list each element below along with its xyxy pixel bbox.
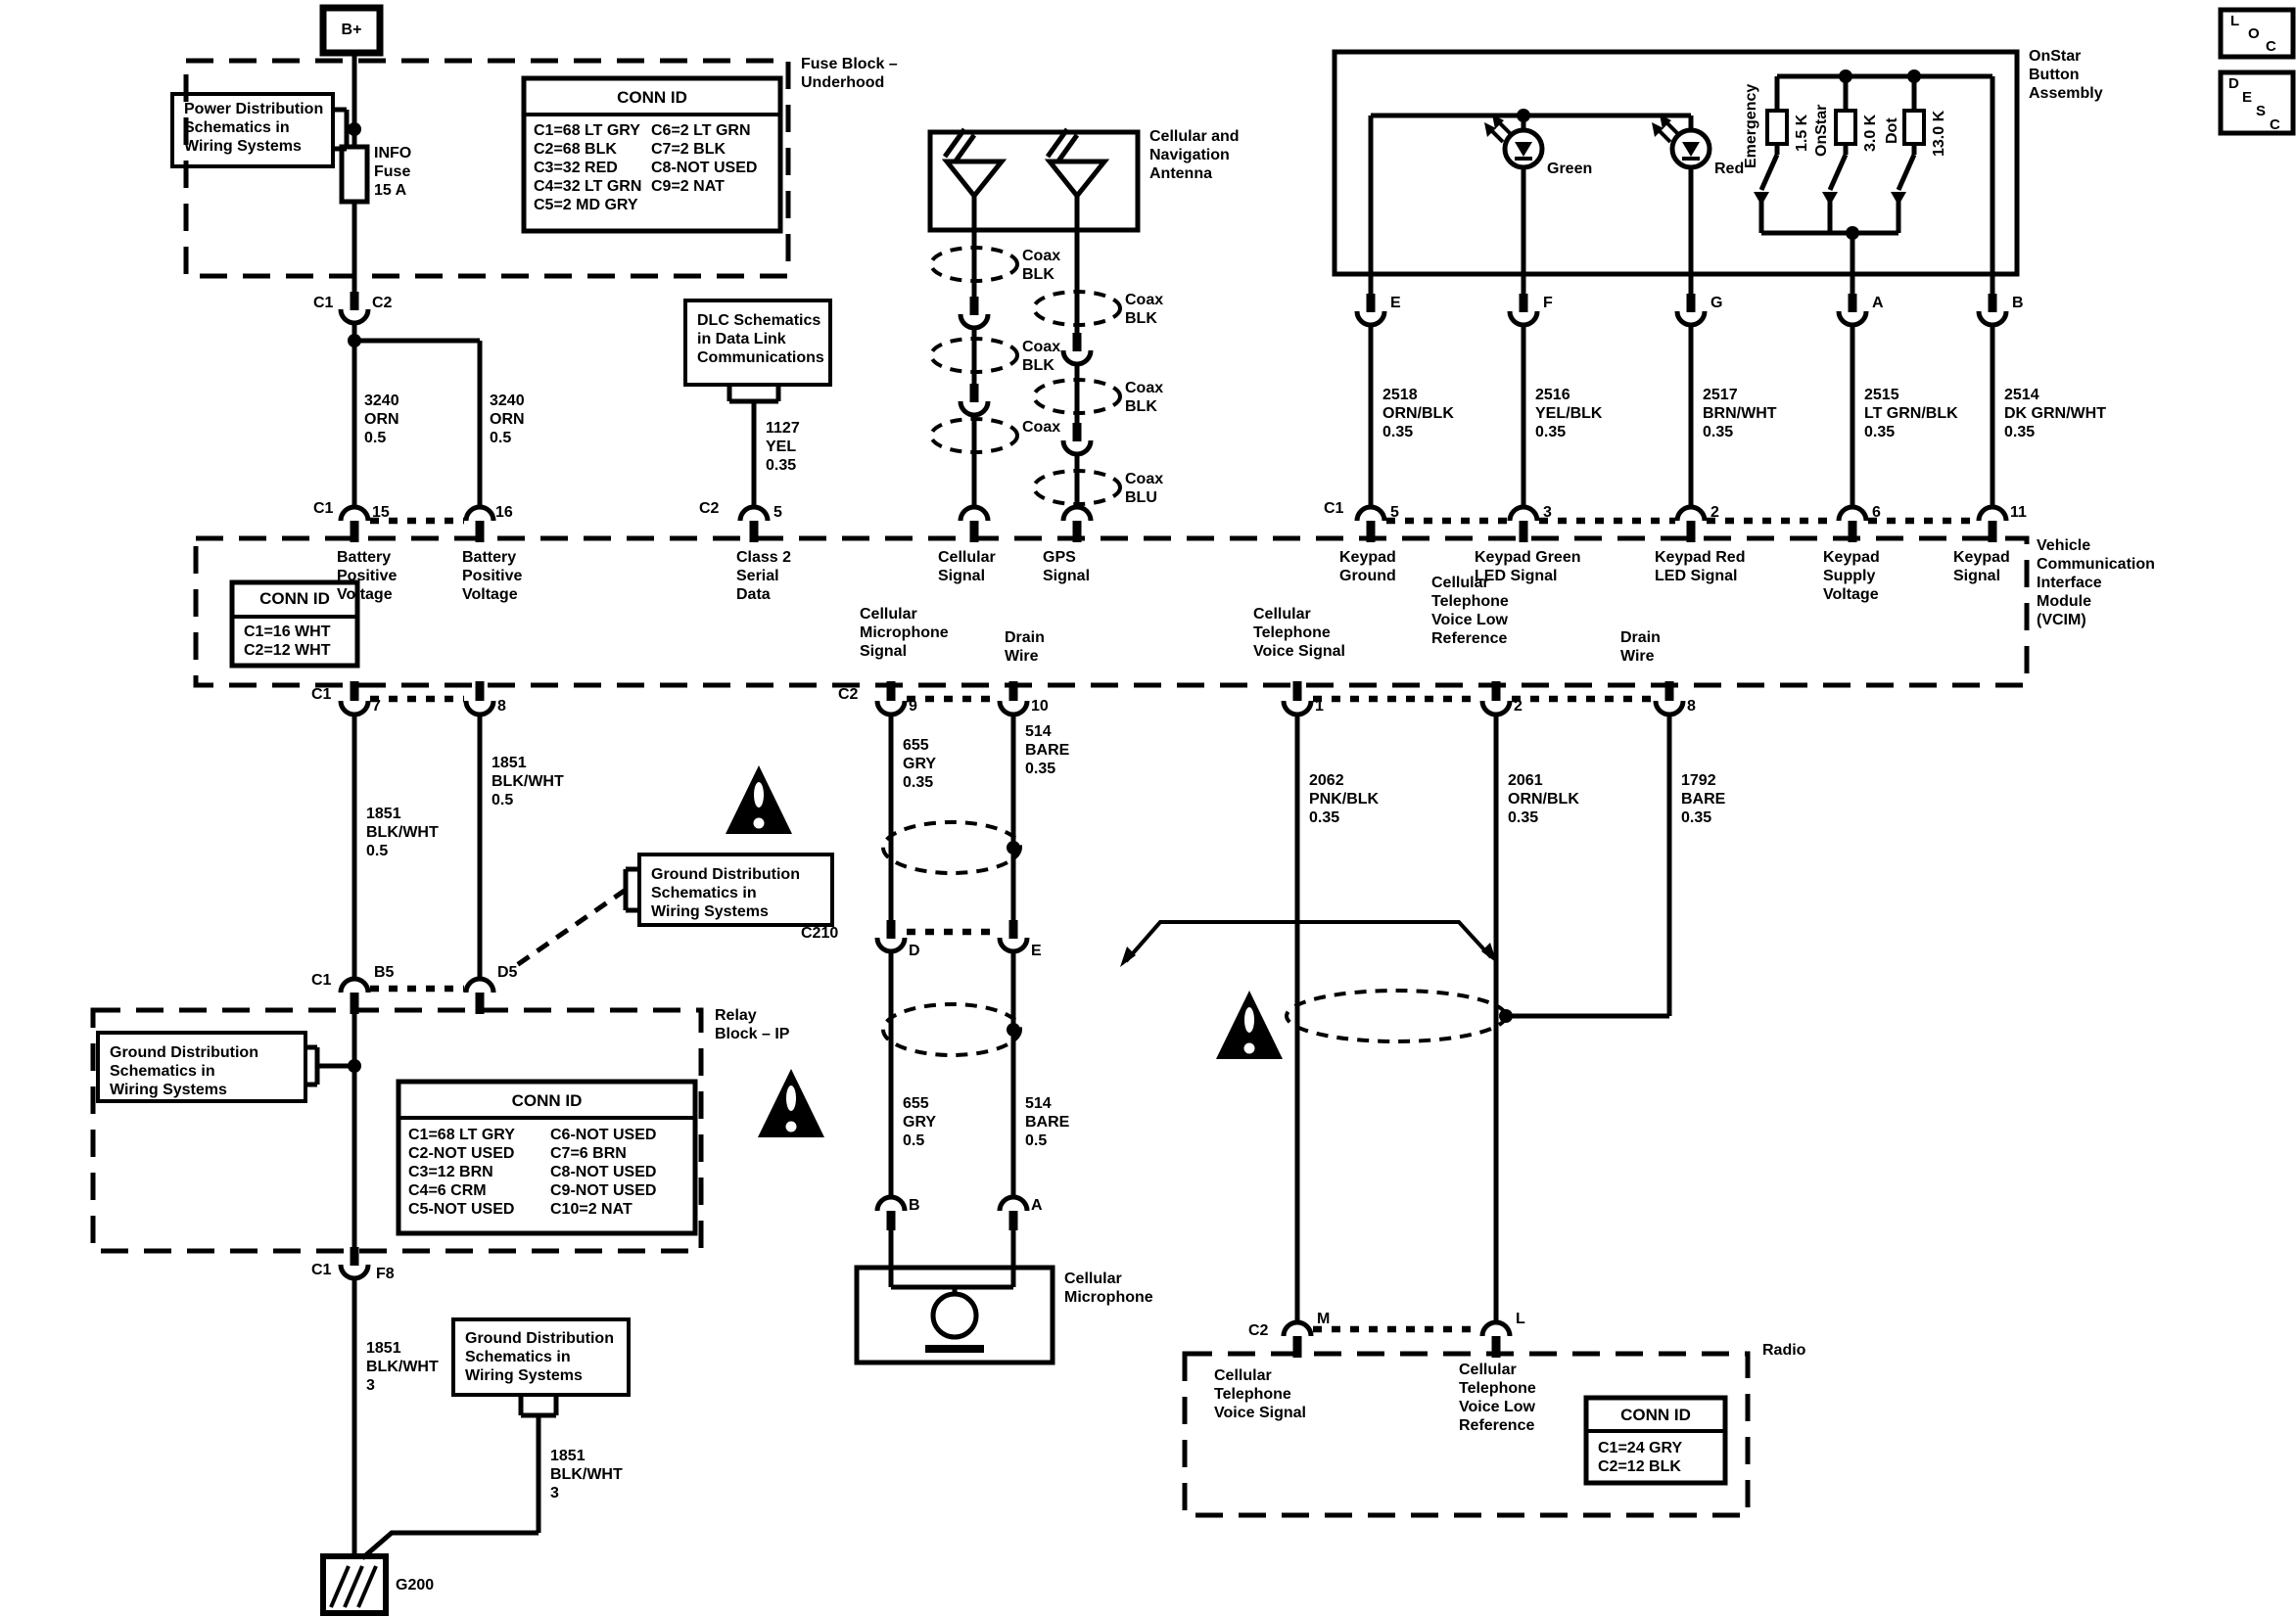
vcim-c2-bottom-label: C2: [838, 685, 858, 704]
c210-pin-d: D: [909, 942, 920, 960]
red-led-icon: [1652, 115, 1710, 167]
wire-2516: 2516 YEL/BLK 0.35: [1535, 386, 1602, 441]
sig-drain-1: Drain Wire: [1005, 628, 1045, 666]
ground-note-pointer-dashed: [514, 890, 626, 967]
microphone-icon: [925, 1294, 984, 1349]
vcim-pin-11: 11: [2010, 503, 2027, 522]
ground-note-mid: Ground Distribution Schematics in Wiring…: [651, 865, 800, 921]
desc-mark-d: D: [2228, 76, 2239, 91]
sig-keypad-supply: Keypad Supply Voltage: [1823, 548, 1880, 604]
relay-pin-f8: F8: [376, 1265, 395, 1283]
vcim-pin-3: 3: [1543, 503, 1552, 522]
wire-2062: 2062 PNK/BLK 0.35: [1309, 771, 1379, 827]
green-led-icon: [1484, 115, 1542, 167]
radio-pin-m: M: [1317, 1310, 1330, 1328]
onstar-title: OnStar Button Assembly: [2029, 47, 2103, 103]
relay-block-title: Relay Block – IP: [715, 1006, 789, 1043]
wire-2518: 2518 ORN/BLK 0.35: [1382, 386, 1454, 441]
resistor-3k-label: 3.0 K: [1861, 115, 1880, 152]
sig-gps: GPS Signal: [1043, 548, 1090, 585]
relay-c1-label: C1: [311, 971, 331, 990]
conn-id-relay-col1: C1=68 LT GRY C2-NOT USED C3=12 BRN C4=6 …: [408, 1126, 515, 1219]
sig-keypad-signal: Keypad Signal: [1953, 548, 2010, 585]
wire-655-lower: 655 GRY 0.5: [903, 1094, 936, 1150]
conn-id-relay-title: CONN ID: [398, 1091, 695, 1110]
wire-3240-right: 3240 ORN 0.5: [490, 392, 525, 447]
sig-voice-signal: Cellular Telephone Voice Signal: [1253, 605, 1345, 661]
sig-class2: Class 2 Serial Data: [736, 548, 791, 604]
sig-drain-2: Drain Wire: [1620, 628, 1661, 666]
wire-2515: 2515 LT GRN/BLK 0.35: [1864, 386, 1958, 441]
mic-pin-b: B: [909, 1196, 920, 1215]
desc-mark-e: E: [2242, 90, 2252, 105]
power-distribution-note: Power Distribution Schematics in Wiring …: [184, 100, 323, 156]
switch-contact-arrows: [1754, 192, 1906, 206]
wire-655-upper: 655 GRY 0.35: [903, 736, 936, 792]
resistor-13k-label: 13.0 K: [1930, 111, 1948, 157]
vcim-pin-1: 1: [1315, 697, 1324, 716]
relay-pin-d5: D5: [497, 963, 517, 982]
wire-1851-pin7: 1851 BLK/WHT 0.5: [366, 805, 439, 860]
wire-514-lower: 514 BARE 0.5: [1025, 1094, 1069, 1150]
radio-title: Radio: [1762, 1341, 1805, 1360]
vcim-pin-5: 5: [773, 503, 782, 522]
sig-keypad-ground: Keypad Ground: [1339, 548, 1396, 585]
vcim-pin-10: 10: [1031, 697, 1049, 716]
fuse-out-c1: C1: [313, 294, 333, 312]
vcim-pin-8b: 8: [1687, 697, 1696, 716]
antenna-title: Cellular and Navigation Antenna: [1149, 127, 1240, 183]
wiring-diagram-onstar-vcim: L O C D E S C B+ Power Distribution Sche…: [0, 0, 2296, 1617]
ground-symbol-g200: [323, 1556, 386, 1613]
conn-id-fuse-title: CONN ID: [524, 88, 780, 107]
radio-sig-voice-low: Cellular Telephone Voice Low Reference: [1459, 1361, 1536, 1435]
wire-2514: 2514 DK GRN/WHT 0.35: [2004, 386, 2106, 441]
vcim-pin-9: 9: [909, 697, 917, 716]
wire-1127: 1127 YEL 0.35: [766, 419, 800, 475]
radio-pin-l: L: [1516, 1310, 1525, 1328]
wire-1792: 1792 BARE 0.35: [1681, 771, 1725, 827]
bplus-label: B+: [323, 21, 380, 39]
ground-note-left: Ground Distribution Schematics in Wiring…: [110, 1043, 258, 1099]
ground-note-bottom: Ground Distribution Schematics in Wiring…: [465, 1329, 614, 1385]
vcim-pin-7: 7: [372, 697, 381, 716]
vcim-pin-2: 2: [1710, 503, 1719, 522]
sig-cellular: Cellular Signal: [938, 548, 996, 585]
coax-left-1: Coax BLK: [1022, 247, 1060, 284]
sig-voice-low: Cellular Telephone Voice Low Reference: [1431, 574, 1509, 648]
wire-3240-left: 3240 ORN 0.5: [364, 392, 399, 447]
switch-dot-label: Dot: [1883, 117, 1901, 144]
conn-id-vcim-title: CONN ID: [232, 589, 357, 608]
pin-a-label: A: [1872, 294, 1884, 312]
warning-triangle-icon: [726, 765, 1283, 1137]
coax-right-2: Coax BLK: [1125, 379, 1163, 416]
pin-b-label: B: [2012, 294, 2024, 312]
radio-sig-voice: Cellular Telephone Voice Signal: [1214, 1366, 1306, 1422]
wire-2061: 2061 ORN/BLK 0.35: [1508, 771, 1579, 827]
fuse-symbol: [342, 147, 367, 202]
mic-title: Cellular Microphone: [1064, 1270, 1153, 1307]
wire-1851-f8: 1851 BLK/WHT 3: [366, 1339, 439, 1395]
green-led-label: Green: [1547, 160, 1592, 178]
wire-514-upper: 514 BARE 0.35: [1025, 722, 1069, 778]
relay-pin-b5: B5: [374, 963, 394, 982]
vcim-pin-2b: 2: [1514, 697, 1523, 716]
conn-id-fuse-col1: C1=68 LT GRY C2=68 BLK C3=32 RED C4=32 L…: [534, 121, 641, 214]
vcim-pin-8: 8: [497, 697, 506, 716]
conn-id-relay-col2: C6-NOT USED C7=6 BRN C8-NOT USED C9-NOT …: [550, 1126, 656, 1219]
fuse-out-c2: C2: [372, 294, 392, 312]
coax-right-1: Coax BLK: [1125, 291, 1163, 328]
radio-c2-label: C2: [1248, 1321, 1268, 1340]
vcim-c1-top-label: C1: [313, 499, 333, 518]
antenna-icon: [945, 129, 1104, 196]
wire-2517: 2517 BRN/WHT 0.35: [1703, 386, 1777, 441]
loc-mark-l: L: [2230, 14, 2239, 28]
pin-f-label: F: [1543, 294, 1553, 312]
vcim-name: Vehicle Communication Interface Module (…: [2037, 536, 2155, 629]
loc-mark-c: C: [2266, 39, 2276, 54]
desc-mark-s: S: [2256, 104, 2266, 118]
pin-g-label: G: [1710, 294, 1722, 312]
fuse-label: INFO Fuse 15 A: [374, 144, 411, 200]
wire-1851-note: 1851 BLK/WHT 3: [550, 1447, 623, 1502]
switch-onstar-label: OnStar: [1812, 105, 1831, 157]
schematic-line-art: [0, 0, 2296, 1617]
vcim-c1-bottom-label: C1: [311, 685, 331, 704]
switch-emergency-label: Emergency: [1742, 84, 1760, 168]
conn-id-radio-rows: C1=24 GRY C2=12 BLK: [1598, 1439, 1682, 1476]
coax-left-2: Coax BLK: [1022, 338, 1060, 375]
g200-label: G200: [396, 1576, 434, 1594]
loc-mark-o: O: [2248, 26, 2260, 41]
dlc-note: DLC Schematics in Data Link Communicatio…: [697, 311, 824, 367]
sig-keypad-red: Keypad Red LED Signal: [1655, 548, 1745, 585]
mic-pin-a: A: [1031, 1196, 1043, 1215]
c210-pin-e: E: [1031, 942, 1042, 960]
shield-extent-arrow: [1120, 922, 1497, 967]
vcim-c2-top-label: C2: [699, 499, 719, 518]
red-led-label: Red: [1714, 160, 1744, 178]
relay-c1-bottom-label: C1: [311, 1261, 331, 1279]
conn-id-fuse-col2: C6=2 LT GRN C7=2 BLK C8-NOT USED C9=2 NA…: [651, 121, 757, 196]
c210-label: C210: [801, 924, 838, 943]
vcim-c1b-top-label: C1: [1324, 499, 1343, 518]
coax-left-3: Coax: [1022, 418, 1060, 437]
conn-id-vcim-rows: C1=16 WHT C2=12 WHT: [244, 623, 330, 660]
vcim-pin-6: 6: [1872, 503, 1881, 522]
conn-id-radio-title: CONN ID: [1586, 1406, 1725, 1424]
fuse-block-title: Fuse Block – Underhood: [801, 55, 898, 92]
resistor-1p5k-label: 1.5 K: [1793, 115, 1811, 152]
sig-mic-signal: Cellular Microphone Signal: [860, 605, 949, 661]
vcim-pin-16: 16: [495, 503, 513, 522]
pin-e-label: E: [1390, 294, 1401, 312]
sig-batt-2: Battery Positive Voltage: [462, 548, 522, 604]
wire-1851-pin8: 1851 BLK/WHT 0.5: [492, 754, 564, 809]
vcim-pin-5b: 5: [1390, 503, 1399, 522]
coax-right-3: Coax BLU: [1125, 470, 1163, 507]
desc-mark-c2: C: [2270, 117, 2280, 132]
vcim-pin-15: 15: [372, 503, 390, 522]
